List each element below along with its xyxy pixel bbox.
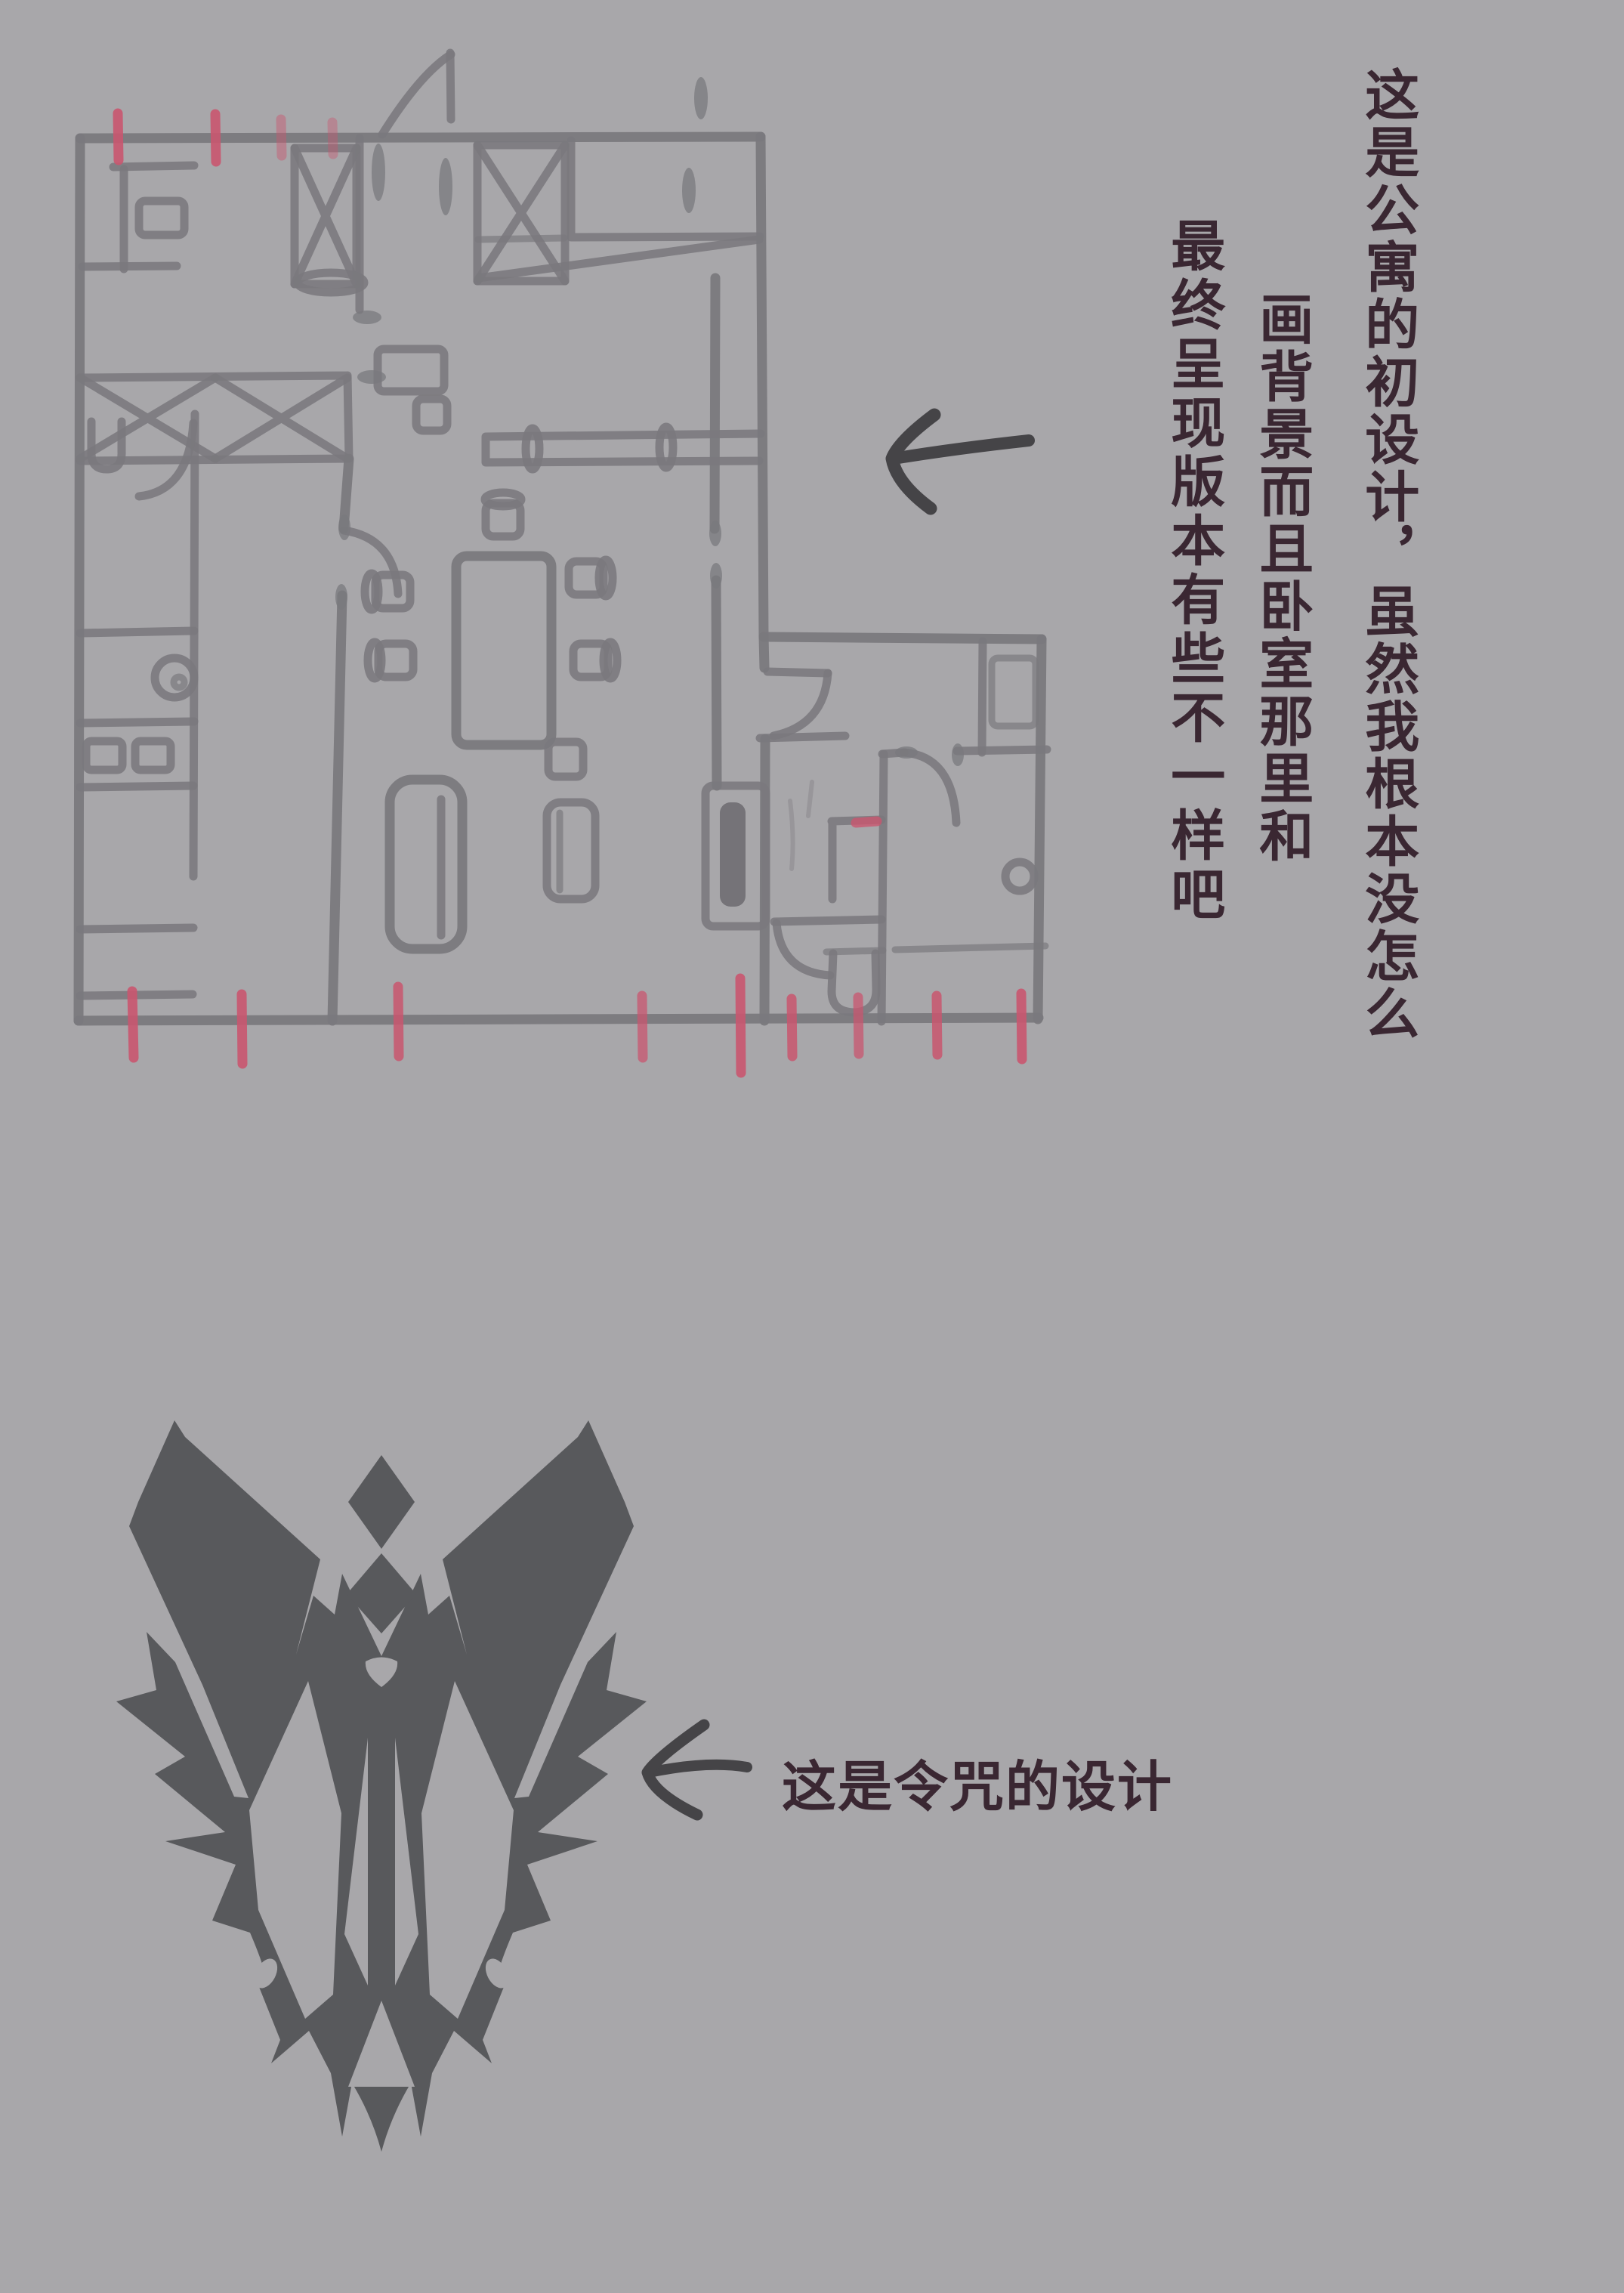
note-column-2: 画背景而且卧室那里和 [1252,291,1311,865]
bedroom [82,138,386,384]
command-seal-emblem [116,1420,647,2152]
wardrobe-x-2 [477,145,565,281]
stool [416,399,447,431]
chair [368,642,413,678]
left-arrow-icon [892,415,1029,508]
wardrobe-x-1 [295,148,364,292]
cabinet [378,349,444,391]
note-column-1: 这是公寓的初设计，虽然我根本没怎么 [1357,66,1416,1043]
stove-burner [86,741,122,770]
note-column-3: 最终呈现版本有些不一样吧 [1163,218,1222,925]
pillow [139,201,184,235]
living-area [390,742,766,949]
seal-caption: 这是令咒的设计 [782,1742,1173,1822]
side-table [548,742,583,777]
armchair [547,802,595,899]
chair [573,642,617,678]
bathroom [760,637,1047,1021]
left-arrow-icon [647,1725,747,1815]
tv [720,802,746,907]
floor-plan-sketch [79,53,1047,1073]
chair [569,560,613,596]
sofa [390,780,462,949]
chair [485,493,521,536]
washer [992,658,1036,726]
dining-table [456,556,551,745]
chair [365,573,410,610]
stove-burner [135,741,171,770]
drain [1005,862,1034,891]
kitchen [80,414,195,996]
sketch-page: 这是公寓的初设计，虽然我根本没怎么 画背景而且卧室那里和 最终呈现版本有些不一样… [0,0,1624,2293]
dining-set [365,493,617,745]
diamond-upper [348,1455,415,1549]
hallway [378,141,761,786]
